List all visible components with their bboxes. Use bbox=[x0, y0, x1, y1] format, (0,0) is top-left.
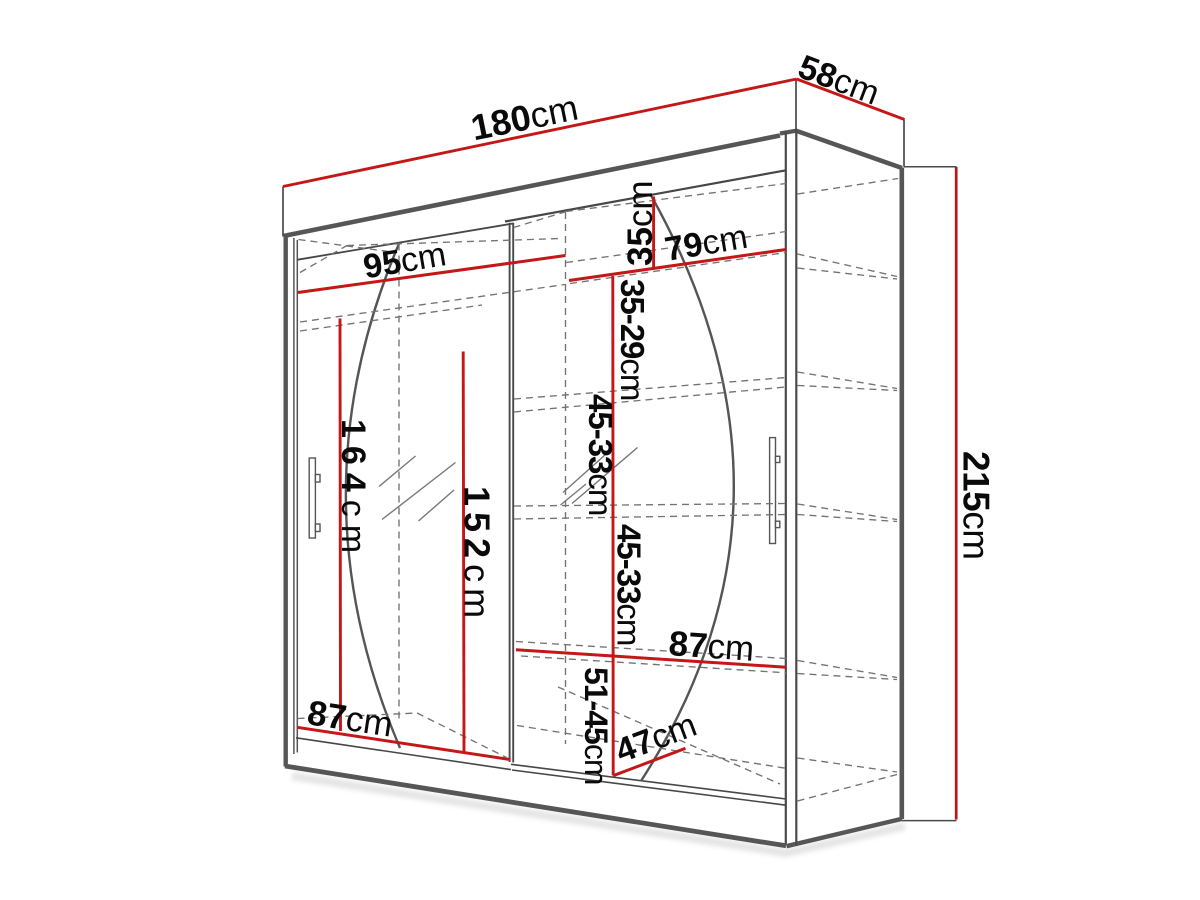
svg-text:152cm: 152cm bbox=[457, 486, 498, 624]
svg-text:45-33cm: 45-33cm bbox=[611, 524, 648, 645]
svg-text:164cm: 164cm bbox=[334, 419, 372, 561]
svg-text:35-29cm: 35-29cm bbox=[614, 279, 651, 400]
svg-text:51-45cm: 51-45cm bbox=[578, 667, 614, 785]
svg-text:215cm: 215cm bbox=[956, 451, 997, 560]
svg-text:87cm: 87cm bbox=[667, 624, 755, 669]
svg-text:45-33cm: 45-33cm bbox=[582, 394, 619, 515]
svg-text:35cm: 35cm bbox=[621, 180, 660, 266]
